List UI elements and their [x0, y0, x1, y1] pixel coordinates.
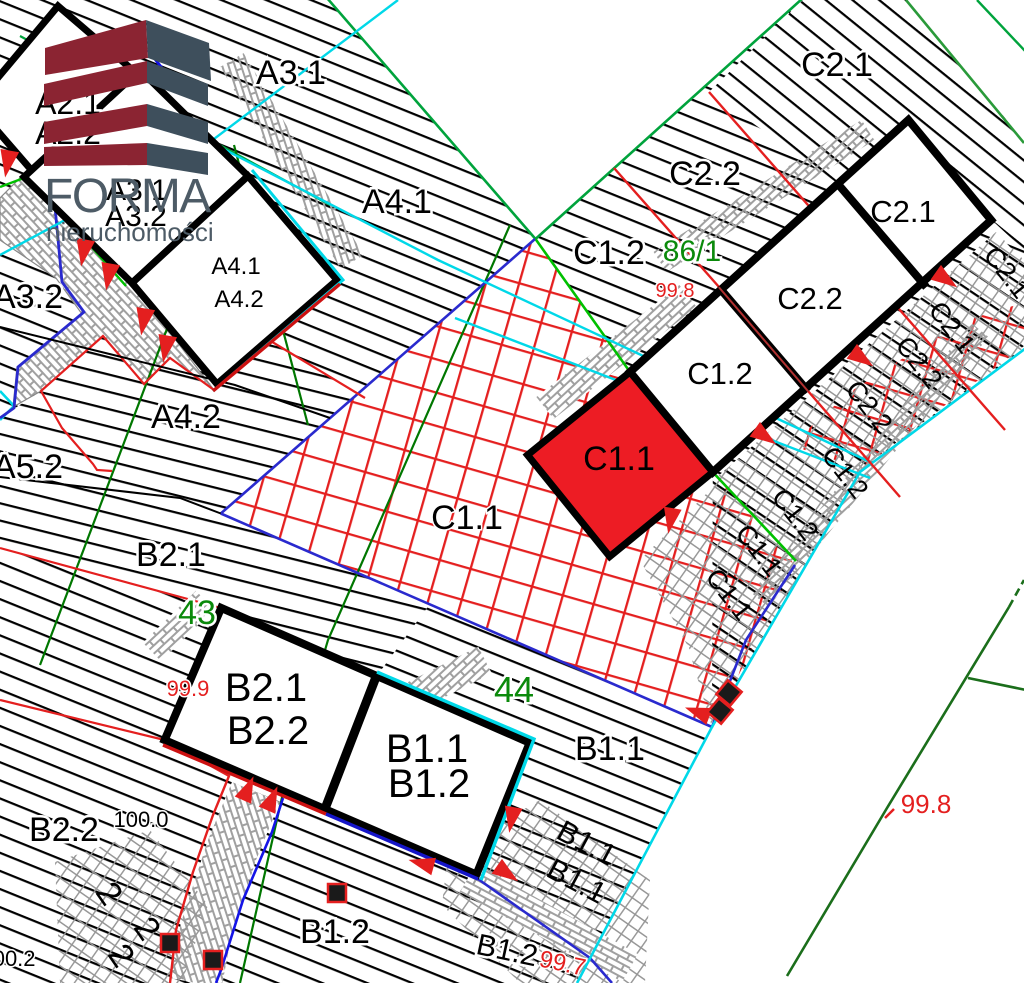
svg-text:99.9: 99.9: [167, 676, 210, 701]
svg-text:A3.1: A3.1: [256, 54, 326, 92]
svg-text:B1.2: B1.2: [388, 762, 470, 806]
svg-text:43: 43: [178, 594, 216, 632]
svg-text:B2.1: B2.1: [225, 666, 307, 710]
svg-text:99.8: 99.8: [901, 789, 952, 819]
svg-text:100.2: 100.2: [0, 946, 36, 971]
svg-text:A3.2: A3.2: [0, 278, 63, 316]
svg-text:C1.2: C1.2: [687, 356, 752, 391]
svg-text:A4.1: A4.1: [211, 253, 260, 280]
svg-text:FORMA: FORMA: [44, 170, 211, 223]
svg-text:C1.1: C1.1: [431, 499, 503, 537]
svg-text:A4.1: A4.1: [362, 183, 432, 221]
svg-text:A5.2: A5.2: [0, 448, 63, 486]
svg-text:C2.1: C2.1: [870, 194, 935, 229]
svg-text:C2.1: C2.1: [801, 46, 873, 84]
svg-text:C1.1: C1.1: [583, 440, 655, 478]
svg-text:C2.2: C2.2: [669, 155, 741, 193]
svg-text:B2.1: B2.1: [136, 536, 206, 574]
svg-text:100.0: 100.0: [113, 807, 168, 832]
svg-text:B1.2: B1.2: [300, 913, 370, 951]
svg-text:B1.1: B1.1: [575, 730, 645, 768]
svg-text:C2.2: C2.2: [777, 281, 842, 316]
svg-text:C1.2: C1.2: [573, 234, 645, 272]
svg-text:A4.2: A4.2: [214, 286, 263, 313]
svg-text:A4.2: A4.2: [151, 398, 221, 436]
svg-text:99.8: 99.8: [656, 280, 695, 302]
svg-text:B2.2: B2.2: [227, 709, 309, 753]
svg-text:44: 44: [494, 669, 534, 710]
svg-text:86/1: 86/1: [663, 235, 721, 268]
svg-text:nieruchomości: nieruchomości: [46, 217, 214, 247]
svg-text:B2.2: B2.2: [29, 811, 99, 849]
